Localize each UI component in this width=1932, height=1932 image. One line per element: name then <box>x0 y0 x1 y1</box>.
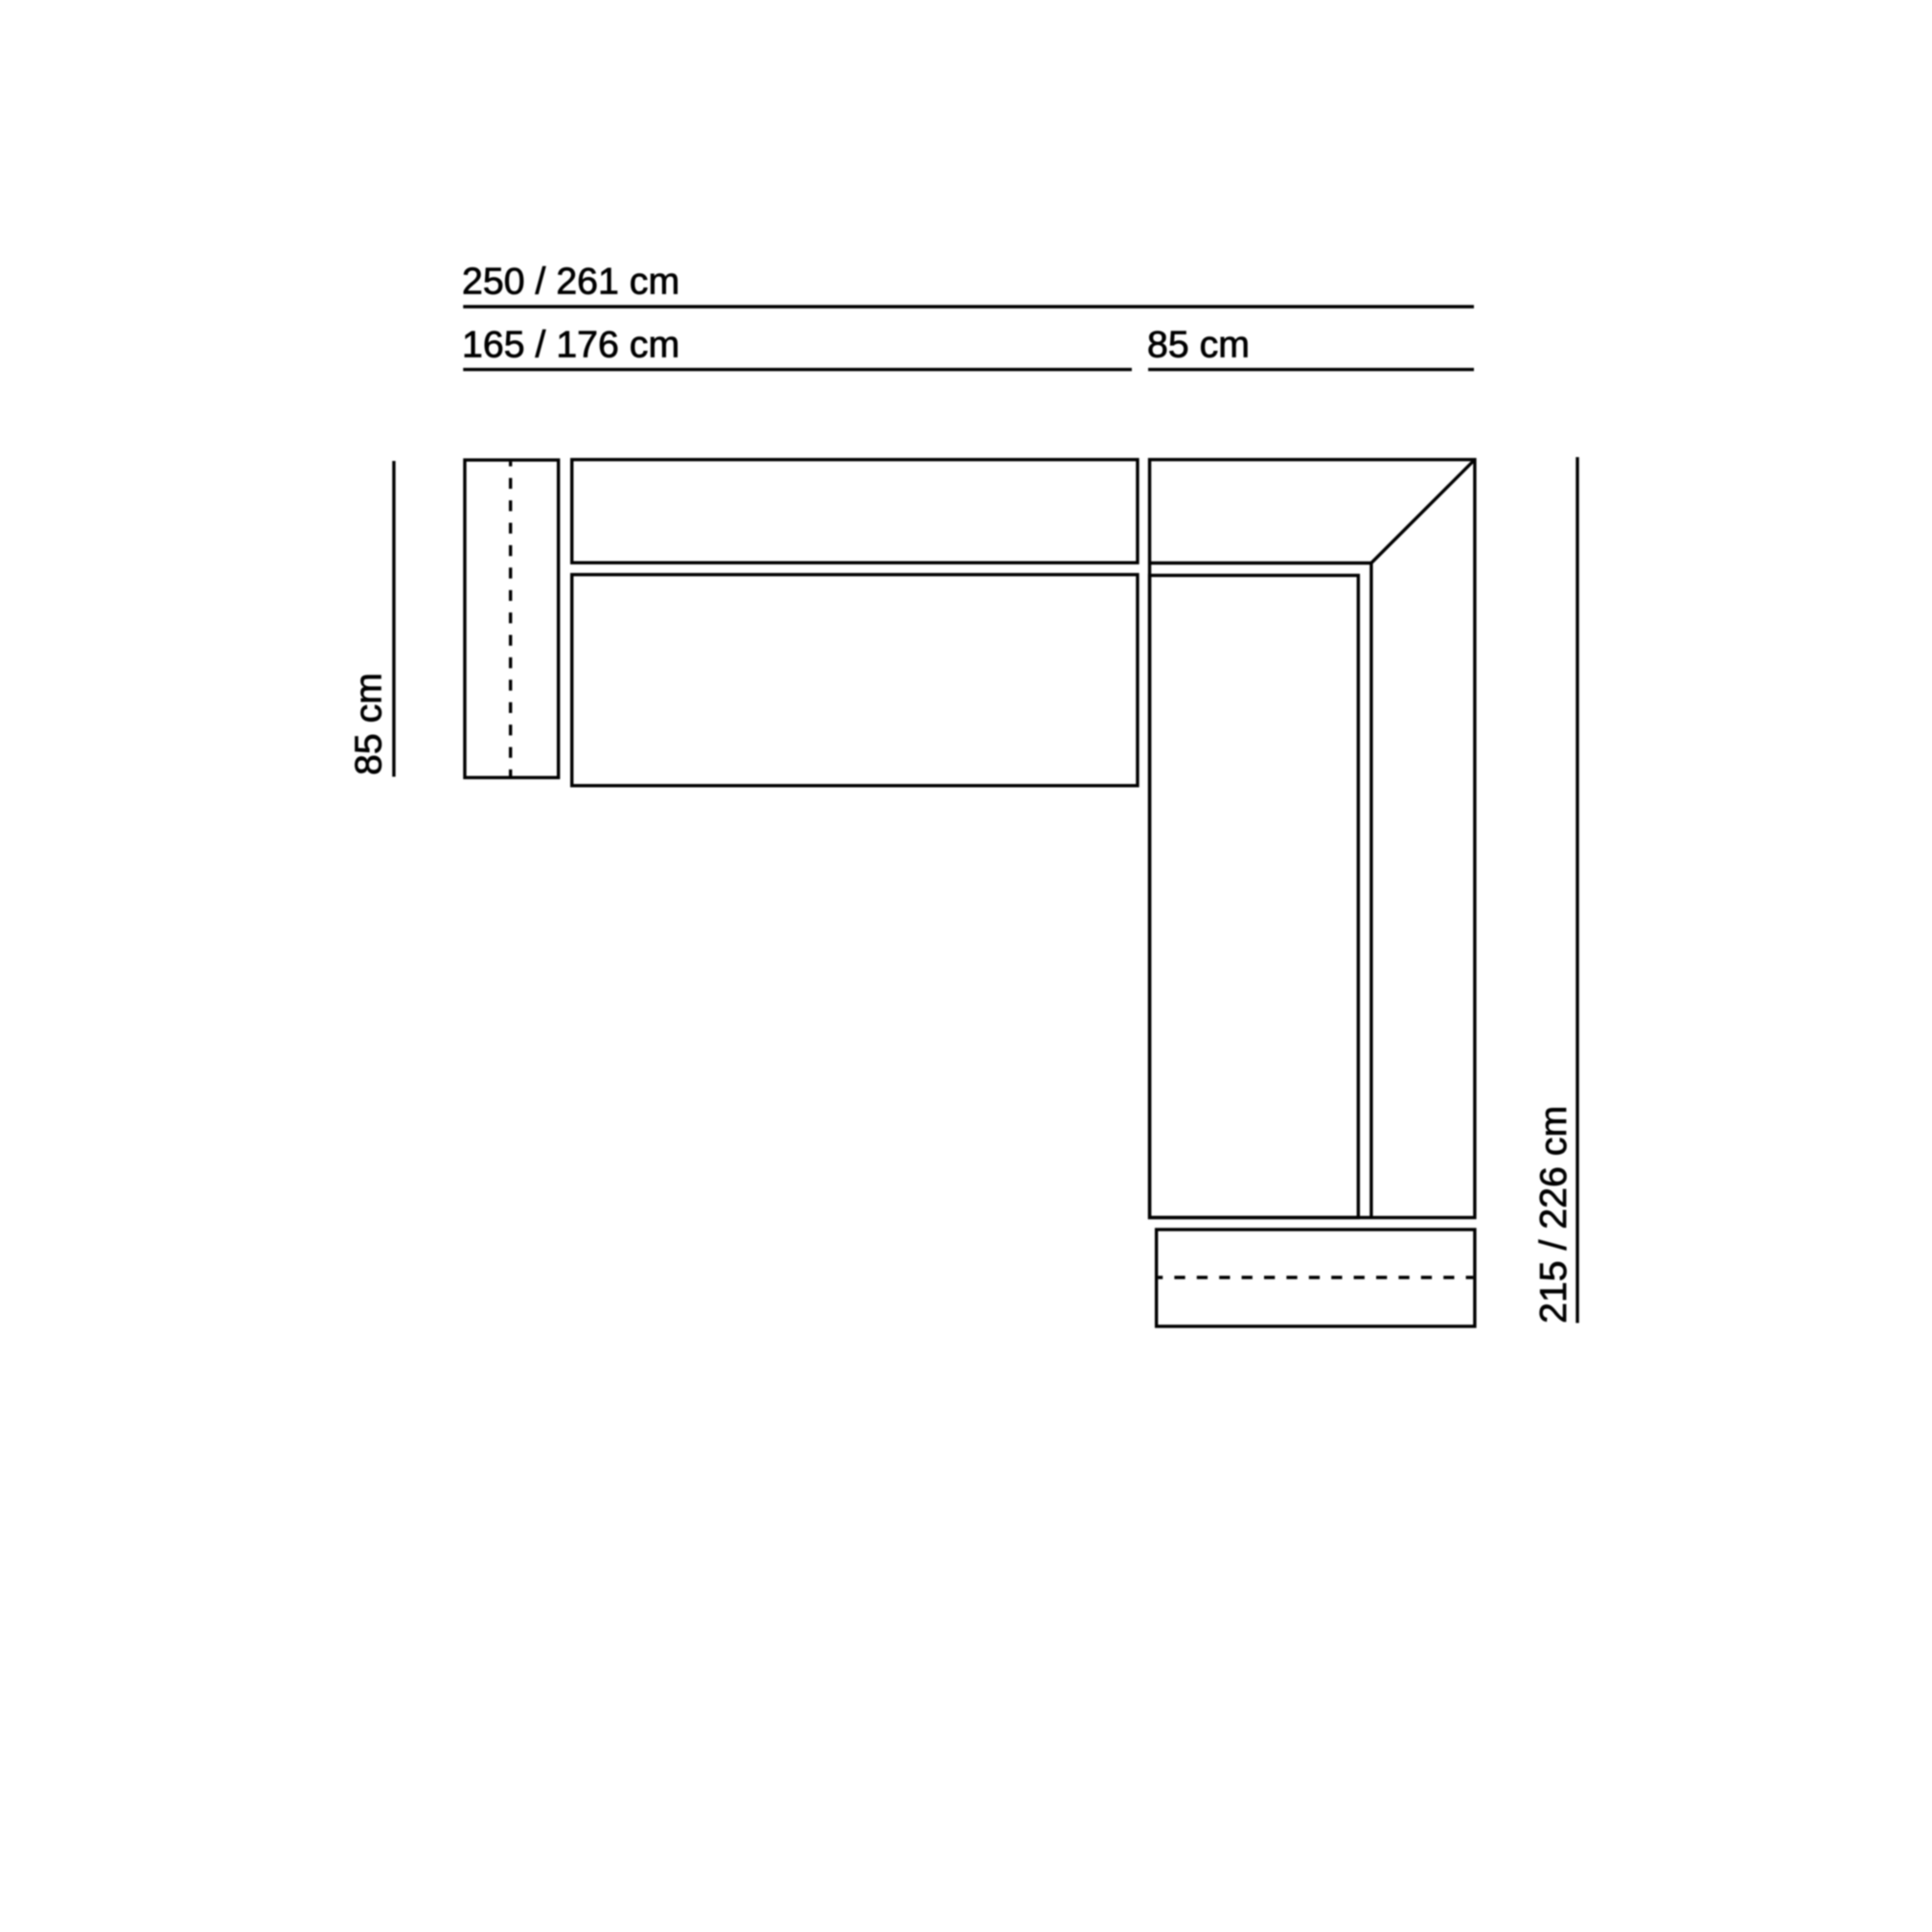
svg-text:85 cm: 85 cm <box>347 673 389 775</box>
svg-text:165 / 176 cm: 165 / 176 cm <box>462 324 679 366</box>
svg-text:250 / 261 cm: 250 / 261 cm <box>462 261 679 303</box>
svg-text:215 / 226 cm: 215 / 226 cm <box>1532 1106 1575 1323</box>
svg-text:85 cm: 85 cm <box>1147 324 1250 366</box>
